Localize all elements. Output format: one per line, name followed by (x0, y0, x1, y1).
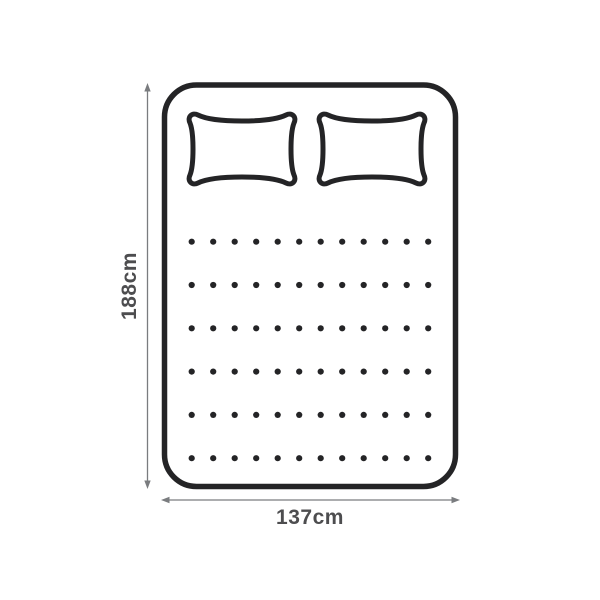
tufting-dot (404, 282, 410, 288)
tufting-dot (232, 282, 238, 288)
tufting-dot (339, 455, 345, 461)
tufting-dot (425, 369, 431, 375)
tufting-dot (189, 412, 195, 418)
arrow-left-icon (161, 497, 170, 503)
mattress-dimension-diagram: 188cm 137cm (0, 0, 600, 600)
height-label: 188cm (118, 252, 141, 320)
tufting-dot (404, 239, 410, 245)
tufting-dot (339, 369, 345, 375)
tufting-dot (253, 325, 259, 331)
tufting-dot (339, 325, 345, 331)
tufting-dot (253, 369, 259, 375)
tufting-dot (296, 282, 302, 288)
tufting-dot (275, 455, 281, 461)
diagram-svg: 188cm 137cm (0, 0, 600, 600)
tufting-dot (318, 282, 324, 288)
tufting-dot (382, 239, 388, 245)
tufting-dot (210, 412, 216, 418)
pillow-left-icon (189, 114, 295, 184)
tufting-dot (253, 282, 259, 288)
tufting-dot (189, 455, 195, 461)
tufting-dot (404, 369, 410, 375)
tufting-dot (425, 239, 431, 245)
tufting-dot (232, 239, 238, 245)
arrow-up-icon (144, 83, 150, 92)
tufting-dot (361, 325, 367, 331)
tufting-dot (361, 282, 367, 288)
width-label: 137cm (276, 506, 344, 529)
tufting-dot (404, 325, 410, 331)
tufting-dot (318, 455, 324, 461)
tufting-dot (425, 325, 431, 331)
tufting-dot (189, 282, 195, 288)
tufting-dot (318, 412, 324, 418)
tufting-dot (296, 239, 302, 245)
tufting-dot (382, 369, 388, 375)
tufting-dot (296, 455, 302, 461)
tufting-dot (339, 239, 345, 245)
tufting-dot (232, 369, 238, 375)
tufting-dot (253, 412, 259, 418)
tufting-dot (382, 455, 388, 461)
arrow-down-icon (144, 481, 150, 490)
width-dimension: 137cm (161, 497, 460, 529)
tufting-dot (296, 369, 302, 375)
tufting-dot (361, 412, 367, 418)
tufting-dot (210, 325, 216, 331)
tufting-dot (210, 239, 216, 245)
tufting-dot (382, 282, 388, 288)
tufting-dot (318, 239, 324, 245)
tufting-dot (318, 325, 324, 331)
tufting-dot (339, 282, 345, 288)
tufting-dot (275, 369, 281, 375)
tufting-dot (382, 412, 388, 418)
tufting-dot (404, 412, 410, 418)
tufting-dot (232, 325, 238, 331)
tufting-dot (275, 282, 281, 288)
tufting-dot (339, 412, 345, 418)
tufting-dot (210, 282, 216, 288)
tufting-dot (189, 239, 195, 245)
tufting-dot (382, 325, 388, 331)
tufting-dot (253, 239, 259, 245)
tufting-dot (296, 412, 302, 418)
tufting-dot (425, 455, 431, 461)
tufting-dot (210, 369, 216, 375)
tufting-dot (232, 455, 238, 461)
pillow-right-icon (319, 114, 425, 184)
tufting-dot (210, 455, 216, 461)
tufting-dot (361, 369, 367, 375)
tufting-dot (296, 325, 302, 331)
tufting-dot (232, 412, 238, 418)
arrow-right-icon (452, 497, 461, 503)
tufting-dot (189, 325, 195, 331)
tufting-dot (361, 239, 367, 245)
tufting-dot (318, 369, 324, 375)
height-dimension: 188cm (118, 83, 151, 489)
tufting-dot (275, 412, 281, 418)
tufting-dot (189, 369, 195, 375)
tufting-dot (404, 455, 410, 461)
tufting-dot (275, 325, 281, 331)
tufting-dot (425, 412, 431, 418)
tufting-dot (361, 455, 367, 461)
tufting-dot (425, 282, 431, 288)
tufting-dot (253, 455, 259, 461)
tufting-dot (275, 239, 281, 245)
